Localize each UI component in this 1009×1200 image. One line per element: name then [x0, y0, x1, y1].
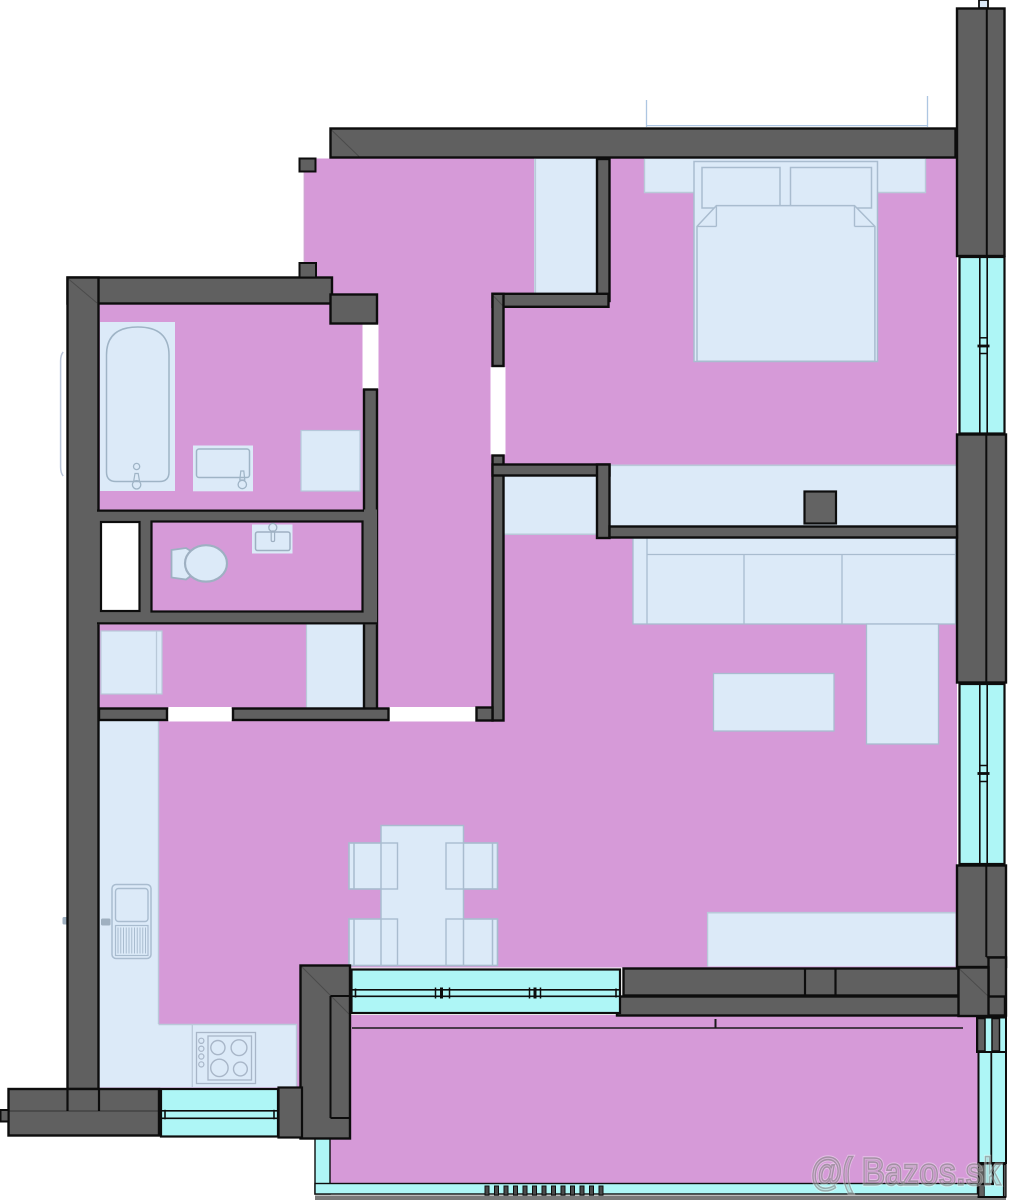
svg-text:@( Bazos.sk: @( Bazos.sk [811, 1151, 1001, 1194]
